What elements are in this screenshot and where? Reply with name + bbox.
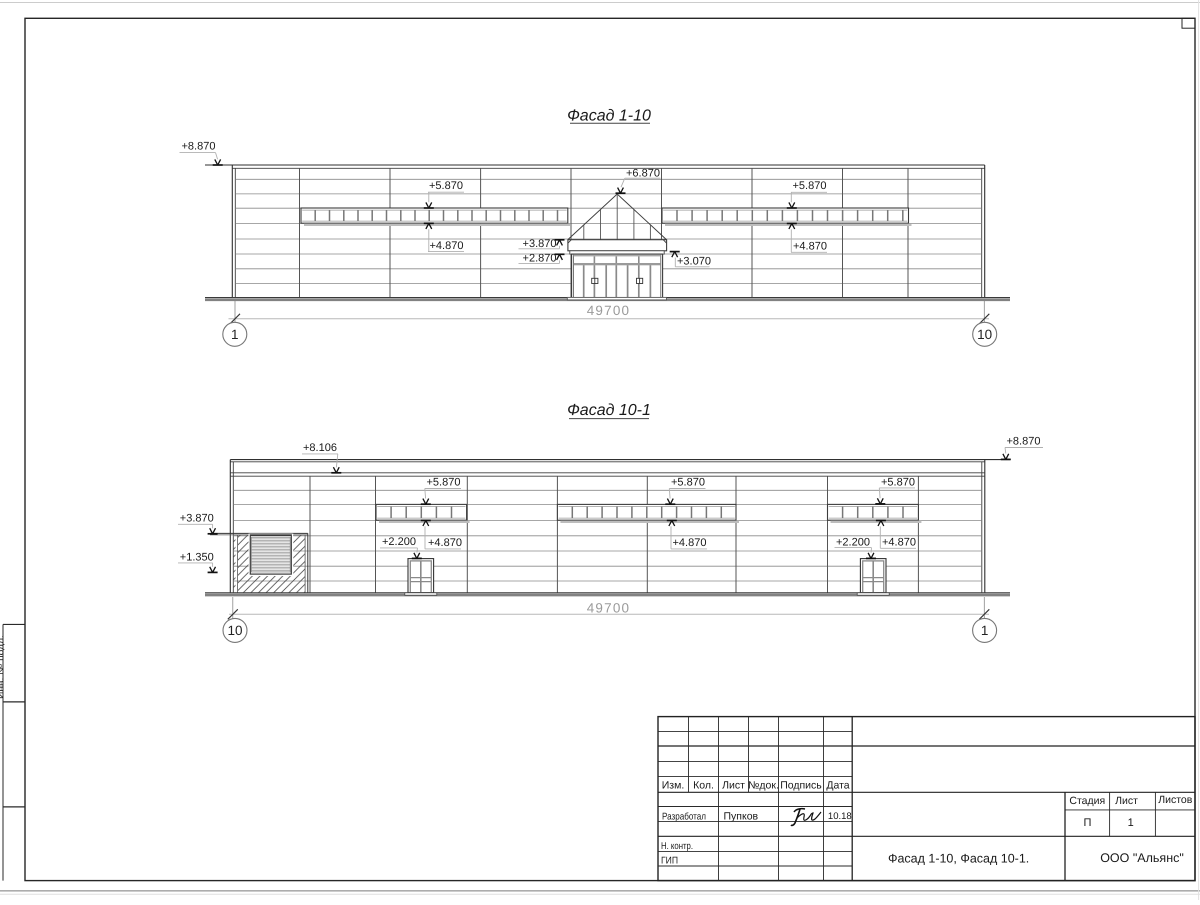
svg-text:+4.870: +4.870 <box>673 537 707 549</box>
svg-text:Фасад 1-10, Фасад 10-1.: Фасад 1-10, Фасад 10-1. <box>888 851 1029 865</box>
svg-text:Подпись: Подпись <box>780 780 822 792</box>
svg-text:+4.870: +4.870 <box>428 537 462 549</box>
svg-text:10: 10 <box>977 327 992 342</box>
svg-text:+5.870: +5.870 <box>881 477 915 489</box>
svg-text:+2.200: +2.200 <box>382 536 416 548</box>
svg-text:+4.870: +4.870 <box>793 240 827 252</box>
svg-text:+5.870: +5.870 <box>429 180 463 192</box>
svg-text:+4.870: +4.870 <box>430 240 464 252</box>
svg-text:Инв. № подл.: Инв. № подл. <box>0 635 5 699</box>
svg-text:ГИП: ГИП <box>661 856 678 867</box>
svg-text:10.18: 10.18 <box>828 811 852 822</box>
svg-text:ООО "Альянс": ООО "Альянс" <box>1100 851 1184 865</box>
svg-text:+2.200: +2.200 <box>836 536 870 548</box>
svg-text:1: 1 <box>1128 817 1134 829</box>
svg-text:+4.870: +4.870 <box>882 536 916 548</box>
svg-text:+8.106: +8.106 <box>303 442 337 454</box>
svg-text:Лист: Лист <box>1115 795 1138 807</box>
svg-text:Фасад 1-10: Фасад 1-10 <box>567 108 651 125</box>
svg-text:1: 1 <box>981 623 989 638</box>
svg-text:Лист: Лист <box>722 780 745 792</box>
svg-text:+3.870: +3.870 <box>523 238 557 250</box>
svg-text:10: 10 <box>227 623 242 638</box>
svg-text:+8.870: +8.870 <box>182 141 216 153</box>
svg-text:+6.870: +6.870 <box>626 168 660 180</box>
svg-text:+3.070: +3.070 <box>677 256 711 268</box>
svg-text:1: 1 <box>231 327 239 342</box>
svg-text:Листов: Листов <box>1158 794 1193 806</box>
svg-text:Фасад 10-1: Фасад 10-1 <box>567 402 651 419</box>
svg-text:+1.350: +1.350 <box>180 551 214 563</box>
svg-text:Н. контр.: Н. контр. <box>661 841 693 852</box>
svg-text:№док.: №док. <box>748 780 779 792</box>
svg-text:Разработал: Разработал <box>662 811 706 822</box>
svg-text:Дата: Дата <box>826 780 849 792</box>
svg-text:+3.870: +3.870 <box>180 513 214 525</box>
svg-text:+8.870: +8.870 <box>1007 436 1041 448</box>
svg-text:Изм.: Изм. <box>662 780 685 792</box>
svg-text:Пупков: Пупков <box>724 811 759 823</box>
svg-text:49700: 49700 <box>587 600 631 615</box>
svg-text:Стадия: Стадия <box>1069 795 1105 807</box>
svg-text:Кол.: Кол. <box>693 780 714 792</box>
svg-text:+5.870: +5.870 <box>793 180 827 192</box>
svg-text:+5.870: +5.870 <box>671 477 705 489</box>
svg-text:+5.870: +5.870 <box>427 477 461 489</box>
svg-text:+2.870: +2.870 <box>523 253 557 265</box>
svg-text:49700: 49700 <box>587 303 631 318</box>
svg-text:П: П <box>1083 817 1091 829</box>
